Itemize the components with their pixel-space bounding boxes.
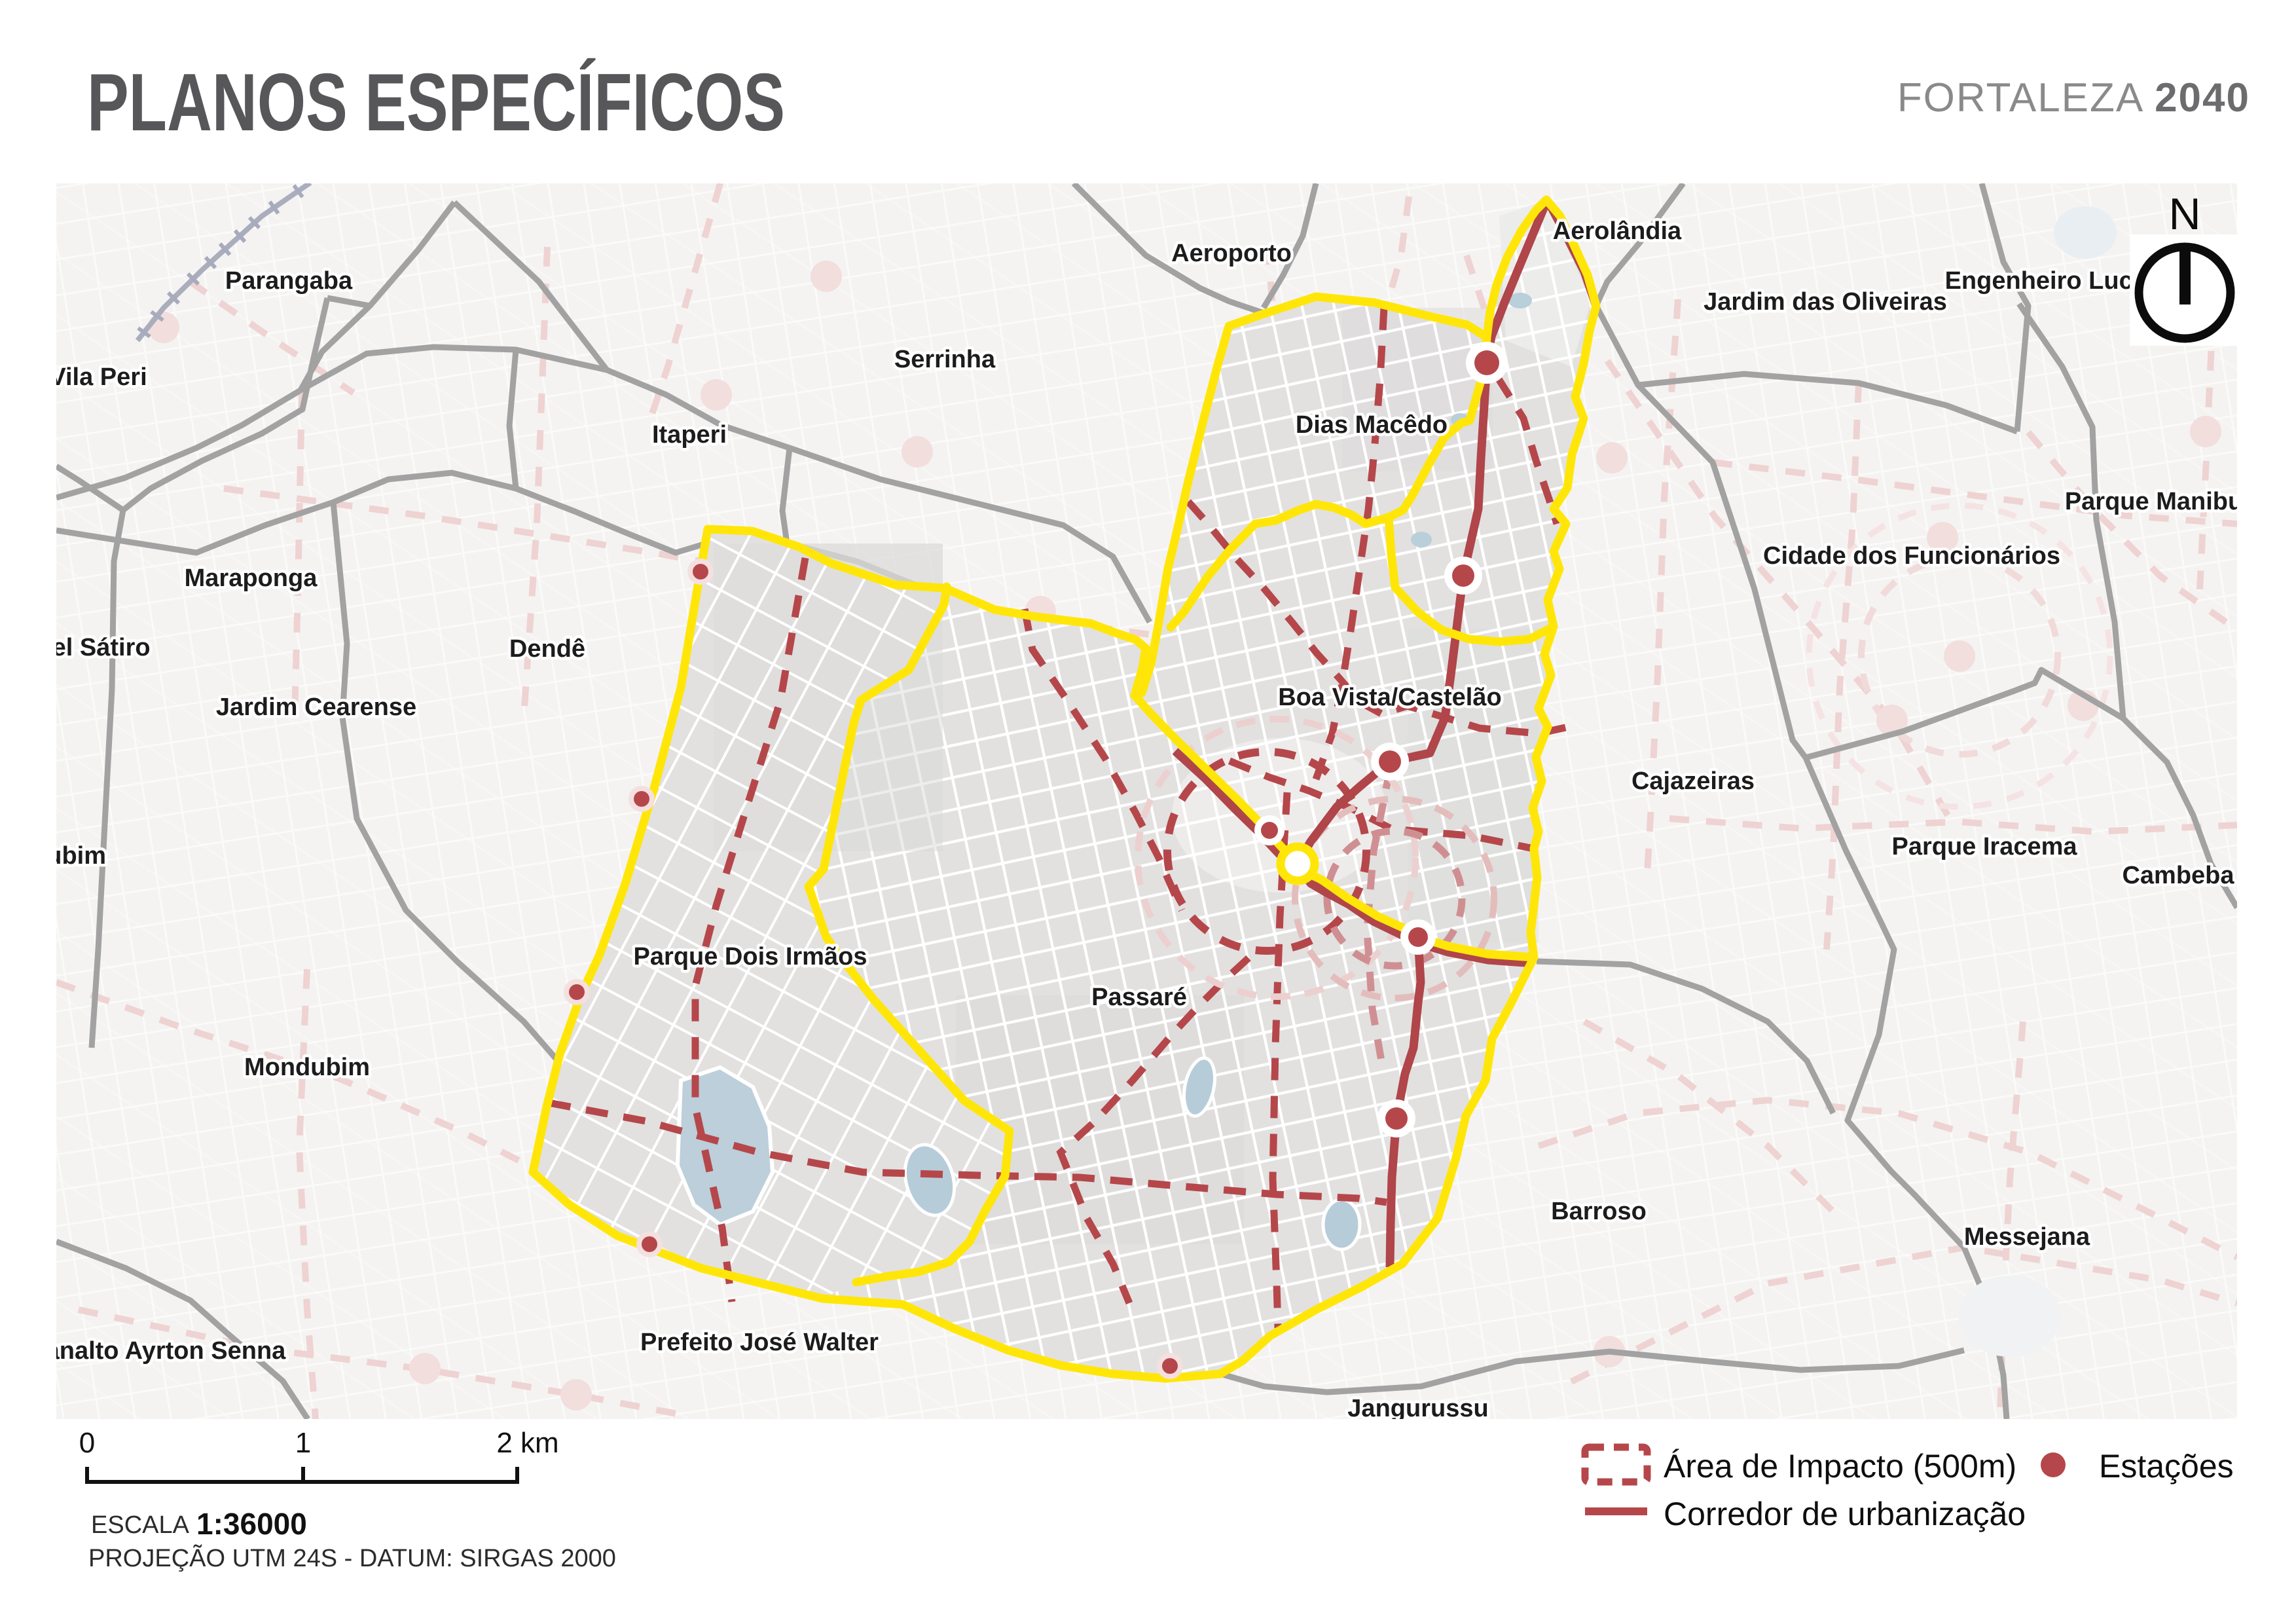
svg-text:Boa Vista/Castelão: Boa Vista/Castelão [1278, 684, 1501, 711]
svg-text:Corredor de urbanização: Corredor de urbanização [1664, 1496, 2026, 1532]
svg-text:Estações: Estações [2099, 1448, 2234, 1485]
svg-text:Cidade dos Funcionários: Cidade dos Funcionários [1763, 542, 2060, 570]
svg-text:Aerolândia: Aerolândia [1553, 217, 1682, 245]
svg-text:Parangaba: Parangaba [225, 267, 353, 295]
svg-text:PROJEÇÃO UTM 24S - DATUM: SIRG: PROJEÇÃO UTM 24S - DATUM: SIRGAS 2000 [88, 1544, 616, 1572]
svg-text:Barroso: Barroso [1551, 1198, 1647, 1225]
svg-text:Jardim das Oliveiras: Jardim das Oliveiras [1704, 288, 1947, 316]
svg-text:1:36000: 1:36000 [196, 1507, 307, 1541]
svg-text:Dendê: Dendê [509, 635, 585, 663]
svg-text:Itaperi: Itaperi [652, 421, 727, 449]
svg-text:Engenheiro Lucia: Engenheiro Lucia [1945, 267, 2155, 295]
svg-text:Prefeito José Walter: Prefeito José Walter [640, 1329, 879, 1356]
svg-text:2 km: 2 km [496, 1427, 558, 1459]
svg-text:Aeroporto: Aeroporto [1171, 240, 1292, 267]
svg-text:Parque Dois Irmãos: Parque Dois Irmãos [634, 943, 867, 970]
svg-text:Mondubim: Mondubim [244, 1054, 370, 1081]
svg-text:Área de Impacto (500m): Área de Impacto (500m) [1664, 1448, 2016, 1485]
svg-text:Parque Iracema: Parque Iracema [1891, 833, 2077, 860]
svg-text:Parque Manibu: Parque Manibu [2065, 488, 2243, 515]
svg-text:Maraponga: Maraponga [185, 564, 318, 592]
svg-text:N: N [2168, 189, 2200, 239]
svg-text:PLANOS ESPECÍFICOS: PLANOS ESPECÍFICOS [87, 58, 785, 148]
svg-text:Passaré: Passaré [1091, 984, 1187, 1011]
svg-text:1: 1 [295, 1427, 311, 1459]
svg-text:Dias Macêdo: Dias Macêdo [1296, 411, 1448, 439]
svg-text:FORTALEZA 2040: FORTALEZA 2040 [1897, 75, 2250, 120]
svg-text:Messejana: Messejana [1964, 1223, 2090, 1251]
svg-text:Cambeba: Cambeba [2122, 862, 2234, 889]
svg-text:Cajazeiras: Cajazeiras [1631, 767, 1755, 795]
svg-text:ESCALA: ESCALA [91, 1511, 190, 1539]
svg-text:Vila Peri: Vila Peri [49, 363, 147, 391]
svg-text:Serrinha: Serrinha [894, 346, 996, 373]
svg-text:0: 0 [79, 1427, 95, 1459]
svg-text:Jardim Cearense: Jardim Cearense [216, 693, 416, 721]
svg-text:Planalto Ayrton Senna: Planalto Ayrton Senna [22, 1337, 286, 1365]
svg-text:Jangurussu: Jangurussu [1347, 1395, 1488, 1422]
